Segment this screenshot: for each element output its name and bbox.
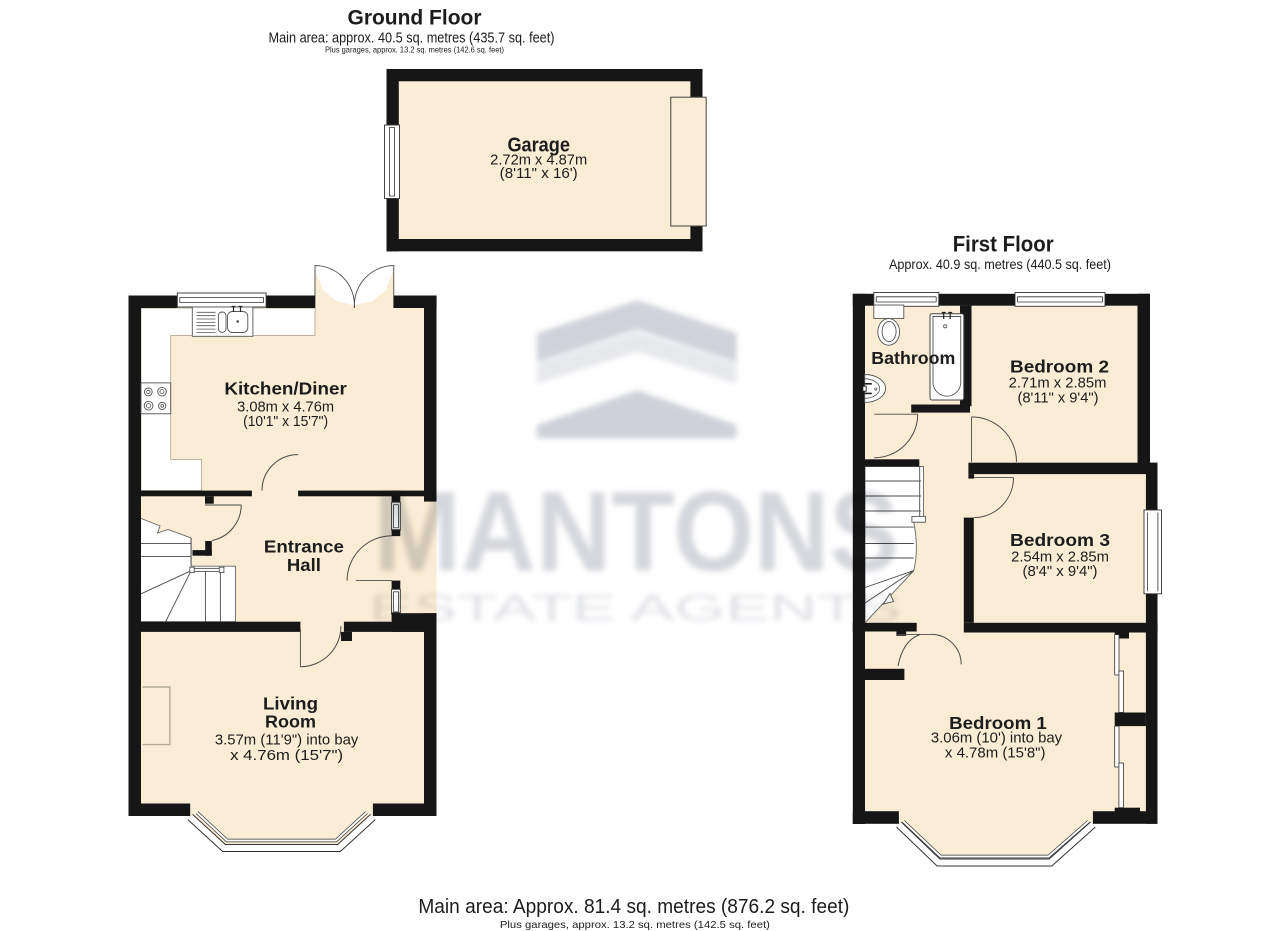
svg-text:x 4.78m (15'8"): x 4.78m (15'8") <box>945 745 1046 761</box>
svg-text:Bedroom 3: Bedroom 3 <box>1010 530 1110 550</box>
svg-text:(8'4" x 9'4"): (8'4" x 9'4") <box>1023 564 1098 580</box>
svg-text:x 4.76m (15'7"): x 4.76m (15'7") <box>230 748 343 764</box>
svg-text:3.06m (10') into bay: 3.06m (10') into bay <box>931 731 1063 747</box>
svg-text:Ground Floor: Ground Floor <box>348 6 483 30</box>
svg-text:(8'11" x 9'4"): (8'11" x 9'4") <box>1018 391 1099 407</box>
svg-text:3.57m (11'9") into bay: 3.57m (11'9") into bay <box>215 733 359 749</box>
svg-text:Entrance: Entrance <box>264 537 344 557</box>
svg-text:MANTONS: MANTONS <box>374 469 899 595</box>
svg-text:Kitchen/Diner: Kitchen/Diner <box>224 379 347 399</box>
svg-text:Bedroom 2: Bedroom 2 <box>1010 357 1109 377</box>
svg-text:2.71m x 2.85m: 2.71m x 2.85m <box>1009 376 1107 392</box>
svg-text:Plus garages, approx. 13.2 sq.: Plus garages, approx. 13.2 sq. metres (1… <box>500 919 770 931</box>
svg-text:(8'11" x 16'): (8'11" x 16') <box>500 166 578 182</box>
svg-text:2.54m x 2.85m: 2.54m x 2.85m <box>1011 550 1109 566</box>
svg-text:ESTATE AGENTS: ESTATE AGENTS <box>369 587 901 628</box>
svg-text:Bathroom: Bathroom <box>871 348 955 368</box>
svg-text:Room: Room <box>265 712 316 732</box>
svg-text:Hall: Hall <box>287 555 321 575</box>
svg-text:Living: Living <box>263 694 318 714</box>
svg-text:Approx. 40.9 sq. metres (440.5: Approx. 40.9 sq. metres (440.5 sq. feet) <box>889 257 1111 272</box>
svg-text:Plus garages, approx. 13.2 sq.: Plus garages, approx. 13.2 sq. metres (1… <box>325 44 504 54</box>
svg-text:Main area: Approx. 81.4 sq. me: Main area: Approx. 81.4 sq. metres (876.… <box>418 895 849 918</box>
svg-text:(10'1" x 15'7"): (10'1" x 15'7") <box>243 414 328 430</box>
svg-text:First Floor: First Floor <box>953 232 1054 257</box>
